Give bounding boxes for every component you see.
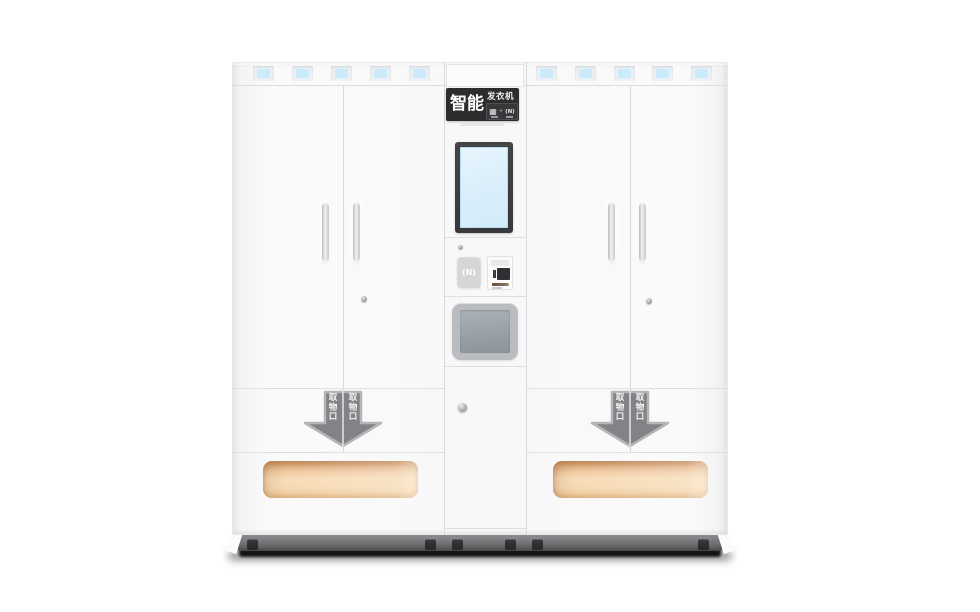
scanner-caption-bar (492, 287, 502, 289)
caster-wheel (424, 536, 438, 551)
indicator-light (370, 66, 391, 82)
column-seam (445, 237, 526, 238)
door-gap-over-arrow (629, 390, 631, 448)
door-handle (353, 203, 360, 261)
door-gap-over-arrow (342, 390, 344, 448)
pickup-port-label: 取物口 (328, 394, 338, 423)
indicator-light (691, 66, 712, 82)
nfc-card-reader: (N) (457, 256, 481, 288)
caster-wheel (504, 536, 518, 551)
scanner-tick (493, 270, 496, 278)
caster-wheel (451, 536, 465, 551)
screw-dot (458, 245, 463, 250)
left-cabinet-seam (232, 388, 444, 389)
indicator-light (652, 66, 673, 82)
qr-scanner-module (487, 256, 513, 290)
pickup-slot-opening-left (263, 461, 418, 498)
indicator-light-lens (335, 69, 348, 78)
sign-fine-print (460, 123, 504, 126)
indicator-light-lens (257, 69, 270, 78)
indicator-light (614, 66, 635, 82)
icon-caption-bar (491, 116, 498, 118)
indicator-light (331, 66, 352, 82)
door-lock (646, 298, 652, 304)
indicator-light-lens (579, 69, 592, 78)
caster-wheel (246, 536, 260, 551)
touchscreen (460, 147, 508, 228)
header-signboard: 智能 发衣机 ▦ + (N) (446, 88, 519, 121)
scene: 智能 发衣机 ▦ + (N) (N) (0, 0, 980, 612)
door-lock (361, 296, 367, 302)
caster-wheel (697, 536, 711, 551)
column-lock-knob (458, 403, 467, 412)
column-seam (445, 528, 526, 529)
left-bottom-panel-seam (232, 452, 444, 453)
indicator-light (575, 66, 596, 82)
pickup-arrow-right: 取物口 取物口 (590, 390, 670, 448)
indicator-light-lens (374, 69, 387, 78)
indicator-light (253, 66, 274, 82)
plus-separator: + (499, 109, 503, 114)
indicator-light-lens (296, 69, 309, 78)
indicator-light-lens (618, 69, 631, 78)
nfc-icon: (N) (462, 268, 476, 277)
indicator-light-lens (413, 69, 426, 78)
column-right-edge (526, 62, 527, 535)
indicator-light-lens (656, 69, 669, 78)
indicator-light-lens (695, 69, 708, 78)
door-handle (322, 203, 329, 261)
column-top-panel (446, 64, 524, 87)
indicator-light (292, 66, 313, 82)
pickup-port-label: 取物口 (635, 394, 645, 423)
caster-wheel (531, 536, 545, 551)
pickup-arrow-left: 取物口 取物口 (303, 390, 383, 448)
indicator-light-lens (540, 69, 553, 78)
pickup-port-label: 取物口 (615, 394, 625, 423)
delivery-hatch-window (460, 310, 510, 353)
sign-payment-icons: ▦ + (N) (486, 103, 518, 120)
column-seam (445, 366, 526, 367)
column-seam (445, 296, 526, 297)
base-plinth (238, 535, 722, 551)
column-left-edge (444, 62, 445, 535)
scanner-slot (492, 283, 509, 286)
qr-code-icon: ▦ (489, 108, 497, 116)
contactless-icon: (N) (505, 109, 515, 115)
touchscreen-bezel (455, 142, 513, 233)
right-cabinet-seam (526, 388, 728, 389)
scanner-top-band (491, 260, 509, 266)
right-bottom-panel-seam (526, 452, 728, 453)
indicator-light (536, 66, 557, 82)
indicator-light (409, 66, 430, 82)
door-handle (608, 203, 615, 261)
icon-caption-bar (506, 116, 513, 118)
sign-title-main: 智能 (450, 94, 484, 114)
pickup-port-label: 取物口 (348, 394, 358, 423)
pickup-slot-opening-right (553, 461, 708, 498)
scanner-window (497, 268, 510, 280)
door-handle (639, 203, 646, 261)
sign-title-sub: 发衣机 (487, 92, 514, 102)
delivery-hatch (452, 303, 518, 360)
